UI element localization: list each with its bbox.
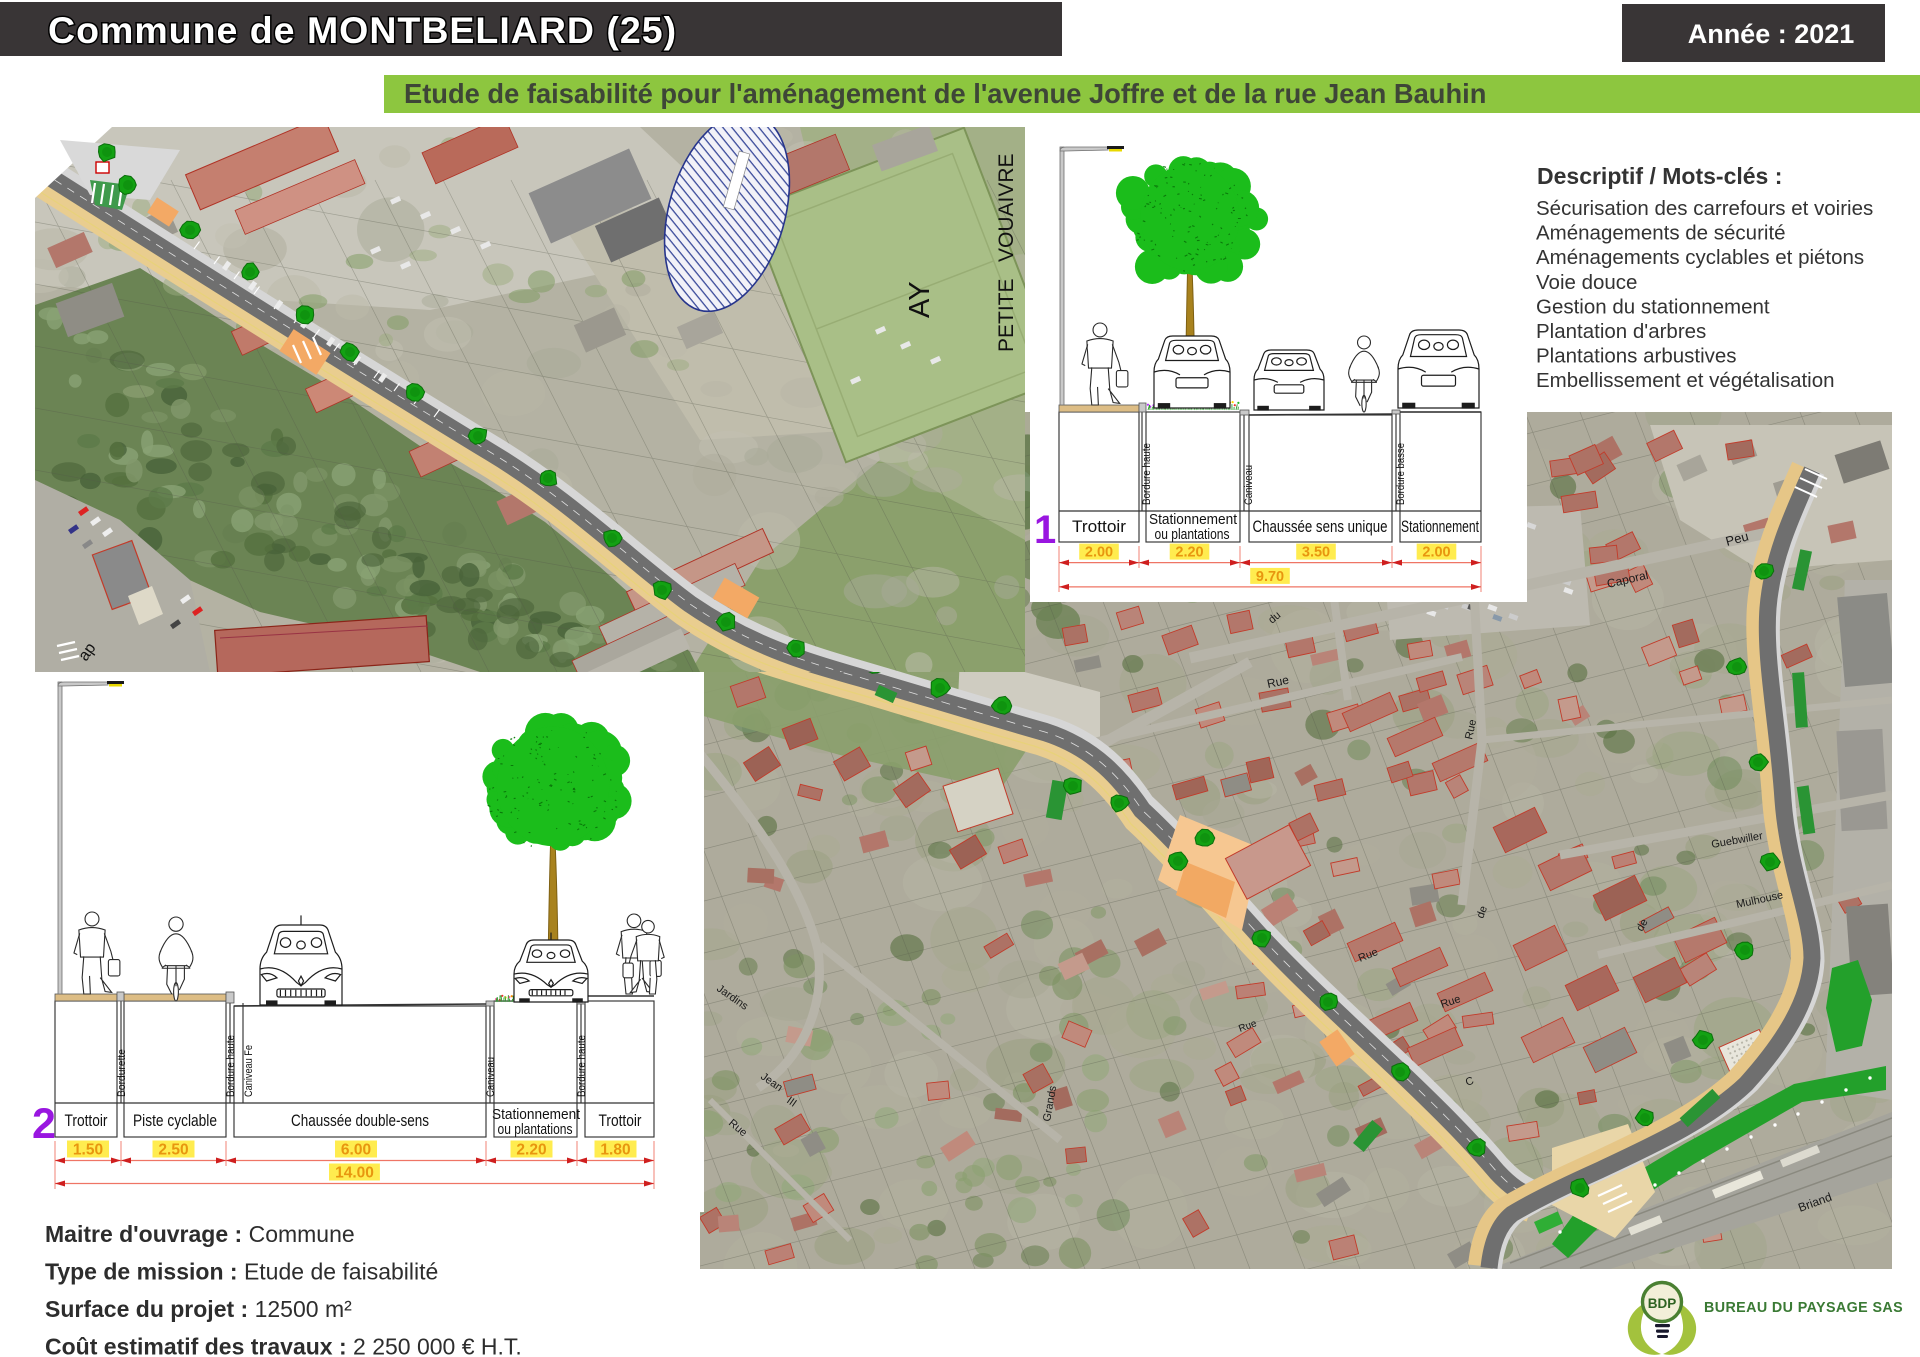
svg-text:Trottoir: Trottoir — [1072, 518, 1127, 536]
svg-text:ou plantations: ou plantations — [1155, 526, 1230, 543]
svg-text:ou plantations: ou plantations — [498, 1121, 573, 1138]
svg-text:AY: AY — [904, 281, 936, 318]
svg-text:14.00: 14.00 — [335, 1165, 374, 1182]
svg-text:6.00: 6.00 — [341, 1142, 371, 1159]
svg-text:2.50: 2.50 — [158, 1142, 188, 1159]
svg-text:1: 1 — [1034, 508, 1056, 552]
svg-text:1.50: 1.50 — [73, 1142, 103, 1159]
svg-text:Plantation d'arbres: Plantation d'arbres — [1536, 320, 1706, 343]
svg-text:Trottoir: Trottoir — [65, 1112, 108, 1130]
svg-text:Aménagements cyclables et piét: Aménagements cyclables et piétons — [1536, 246, 1864, 269]
svg-text:Maitre d'ouvrage : Commune: Maitre d'ouvrage : Commune — [45, 1221, 355, 1247]
svg-text:2.00: 2.00 — [1422, 545, 1450, 561]
svg-text:Bordure haute: Bordure haute — [576, 1035, 588, 1097]
svg-text:Type de mission : Etude de fai: Type de mission : Etude de faisabilité — [45, 1259, 438, 1285]
svg-text:Caniveau: Caniveau — [485, 1057, 497, 1097]
svg-text:BDP: BDP — [1648, 1296, 1677, 1311]
svg-text:Aménagements de sécurité: Aménagements de sécurité — [1536, 222, 1786, 245]
svg-text:Stationnement: Stationnement — [1401, 518, 1479, 536]
svg-text:1.80: 1.80 — [600, 1142, 630, 1159]
svg-text:Bordure basse: Bordure basse — [1395, 443, 1407, 505]
svg-text:Etude de faisabilité pour l'am: Etude de faisabilité pour l'aménagement … — [404, 78, 1486, 109]
svg-text:Sécurisation des carrefours et: Sécurisation des carrefours et voiries — [1536, 197, 1873, 220]
svg-text:2.20: 2.20 — [516, 1142, 546, 1159]
svg-text:BUREAU DU PAYSAGE SAS: BUREAU DU PAYSAGE SAS — [1704, 1300, 1903, 1316]
svg-text:Commune de MONTBELIARD (25): Commune de MONTBELIARD (25) — [48, 9, 677, 51]
svg-text:Chaussée double-sens: Chaussée double-sens — [291, 1112, 429, 1130]
svg-text:Bordurette: Bordurette — [116, 1049, 128, 1097]
svg-text:Trottoir: Trottoir — [599, 1112, 642, 1130]
svg-text:Descriptif / Mots-clés :: Descriptif / Mots-clés : — [1537, 163, 1782, 189]
svg-text:Bordure haute: Bordure haute — [1141, 443, 1153, 505]
svg-text:Voie douce: Voie douce — [1536, 271, 1637, 294]
svg-text:Plantations arbustives: Plantations arbustives — [1536, 345, 1737, 368]
svg-text:2.20: 2.20 — [1175, 545, 1203, 561]
svg-text:VOUAIVRE: VOUAIVRE — [995, 153, 1018, 262]
svg-text:3.50: 3.50 — [1302, 545, 1330, 561]
svg-text:Gestion du stationnement: Gestion du stationnement — [1536, 295, 1770, 318]
svg-text:Caniveau: Caniveau — [1243, 465, 1255, 505]
svg-text:Caniveau Fe: Caniveau Fe — [243, 1045, 255, 1097]
svg-text:Surface du projet : 12500 m²: Surface du projet : 12500 m² — [45, 1296, 352, 1322]
svg-text:PETITE: PETITE — [995, 278, 1018, 352]
svg-text:Année : 2021: Année : 2021 — [1688, 19, 1855, 49]
svg-text:Embellissement et végétalisati: Embellissement et végétalisation — [1536, 369, 1835, 392]
svg-text:Chaussée sens unique: Chaussée sens unique — [1253, 518, 1388, 536]
svg-text:9.70: 9.70 — [1256, 569, 1284, 585]
svg-text:Coût estimatif des travaux : 2: Coût estimatif des travaux : 2 250 000 €… — [45, 1334, 522, 1357]
svg-text:Piste cyclable: Piste cyclable — [133, 1112, 217, 1130]
svg-text:2: 2 — [32, 1100, 56, 1148]
svg-text:2.00: 2.00 — [1085, 545, 1113, 561]
svg-text:Bordure haute: Bordure haute — [225, 1035, 237, 1097]
